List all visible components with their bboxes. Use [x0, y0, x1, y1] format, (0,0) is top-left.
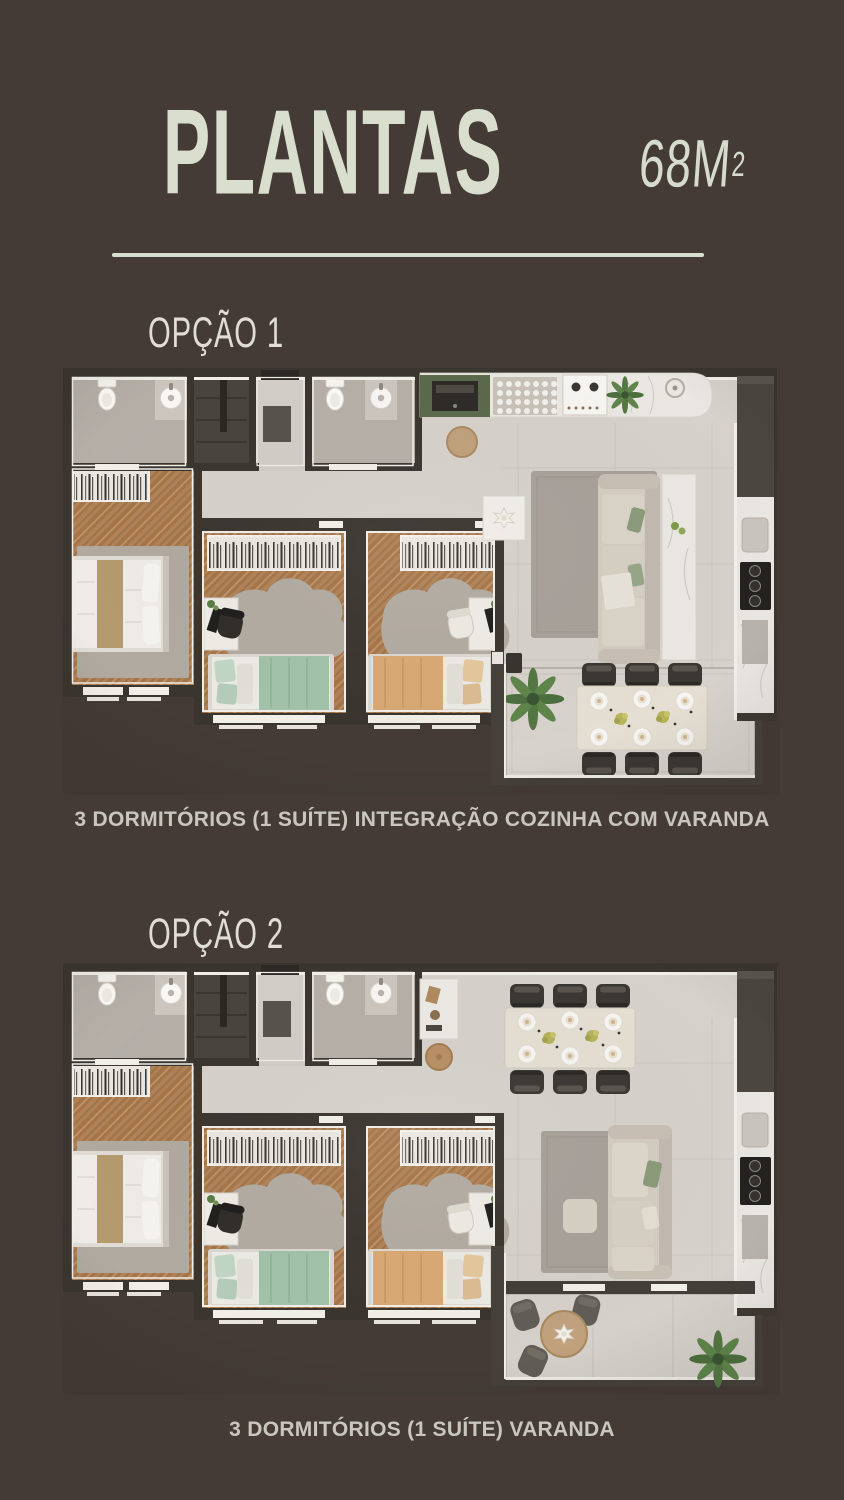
- stool: [447, 427, 477, 457]
- fridge-tall-cabinet: [737, 376, 774, 497]
- sofa: [598, 474, 660, 664]
- dining-chair: [582, 663, 616, 687]
- dining-chair: [510, 1070, 544, 1094]
- dining-chair: [596, 1070, 630, 1094]
- dining-chair: [625, 752, 659, 776]
- door-leaf: [220, 378, 227, 432]
- option-2-label: OPÇÃO 2: [148, 913, 284, 956]
- living-room: [541, 1125, 672, 1279]
- single-bed-tan: [368, 654, 494, 712]
- counter-plant-icon: [606, 376, 644, 414]
- kitchen-cabinet: [742, 620, 768, 664]
- option-1-label: OPÇÃO 1: [148, 312, 284, 355]
- sofa: [608, 1125, 672, 1279]
- dining-chair: [668, 663, 702, 687]
- ac-unit: [506, 653, 522, 673]
- option-2-caption: 3 DORMITÓRIOS (1 SUÍTE) VARANDA: [0, 1418, 844, 1442]
- dining-chair: [553, 1070, 587, 1094]
- area-badge: 68M2: [637, 130, 748, 197]
- floorplan-option-2-image: [63, 963, 780, 1395]
- double-bed: [71, 556, 169, 652]
- kitchen-column: [734, 376, 777, 721]
- toilet-icon: [98, 379, 116, 410]
- bathroom-social-floor: [312, 376, 415, 468]
- dish-rack: [493, 377, 557, 415]
- wardrobe: [401, 536, 495, 570]
- area-value: 68M: [637, 126, 734, 202]
- dining-chair: [582, 752, 616, 776]
- dining-chair: [596, 984, 630, 1008]
- cooktop-counter-icon: [563, 375, 607, 415]
- cooktop-icon: [740, 562, 771, 610]
- dining-chair: [668, 752, 702, 776]
- kitchen-sink: [742, 518, 768, 552]
- single-bed-green: [208, 654, 334, 712]
- toilet-icon: [326, 379, 344, 410]
- area-superscript: 2: [730, 146, 747, 185]
- floorplan-option-1-image: [63, 368, 780, 795]
- dining-chair: [510, 984, 544, 1008]
- dining-room: [505, 984, 635, 1094]
- ottoman: [563, 1199, 597, 1233]
- entry-console: [420, 979, 458, 1070]
- option-1-caption: 3 DORMITÓRIOS (1 SUÍTE) INTEGRAÇÃO COZIN…: [0, 808, 844, 832]
- page-title: PLANTAS: [163, 96, 504, 207]
- header: PLANTAS 68M2: [0, 96, 844, 195]
- dining-chair: [553, 984, 587, 1008]
- flyer-page: PLANTAS 68M2 OPÇÃO 1: [0, 0, 844, 1500]
- title-divider: [112, 253, 704, 257]
- marble-console: [662, 474, 696, 660]
- dining-chair: [625, 663, 659, 687]
- fern-plant-icon: [689, 1330, 747, 1388]
- fern-plant-icon: [502, 668, 565, 731]
- wardrobe: [208, 536, 340, 570]
- hall-cabinet: [263, 406, 291, 442]
